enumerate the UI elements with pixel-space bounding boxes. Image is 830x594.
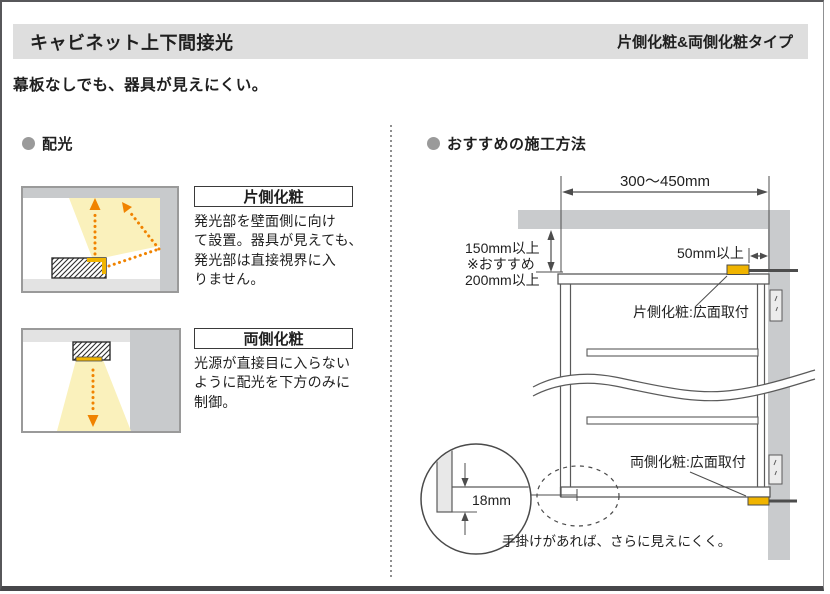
one-side-label-box: 片側化粧	[194, 186, 353, 207]
note-text: 手掛けがあれば、さらに見えにくく。	[502, 534, 731, 549]
arrow-left-icon	[750, 253, 758, 260]
clearance-text: 150mm以上	[465, 240, 540, 256]
installation-section-title: おすすめの施工方法	[447, 133, 587, 154]
cabinet-bottom-panel	[561, 487, 770, 497]
both-sides-description: 光源が直接目に入らない ように配光を下方のみに 制御。	[194, 354, 376, 412]
fixture-bottom	[748, 497, 769, 505]
fixture-top-label: 片側化粧:広面取付	[633, 304, 749, 320]
one-side-label: 片側化粧	[243, 186, 303, 207]
upper-shelf-gray	[23, 330, 130, 342]
fixture-top	[727, 265, 749, 275]
shelf-upper	[587, 349, 758, 356]
arrow-right-icon	[760, 253, 768, 260]
installation-diagram: 300〜450mm 150mm以上 ※おすすめ 200mm以上 50mm以上	[415, 160, 820, 560]
detail-dim-text: 18mm	[472, 492, 511, 508]
catalog-page: キャビネット上下間接光 片側化粧&両側化粧タイプ 幕板なしでも、器具が見えにくい…	[0, 0, 830, 594]
arrow-down-icon	[547, 262, 554, 272]
type-label: 片側化粧&両側化粧タイプ	[617, 31, 793, 52]
page-title: キャビネット上下間接光	[30, 29, 234, 55]
wall-bracket-bottom	[769, 455, 782, 484]
clearance-note-prefix: ※おすすめ	[467, 256, 535, 272]
both-sides-label-box: 両側化粧	[194, 328, 353, 349]
column-divider	[390, 125, 392, 577]
light-emitter-strip	[76, 357, 102, 361]
counter-surface	[23, 279, 160, 291]
wall-gray	[130, 330, 179, 431]
arrow-up-icon	[547, 230, 554, 240]
clearance-note-value: 200mm以上	[465, 272, 540, 288]
dim-width-text: 300〜450mm	[620, 173, 710, 190]
arrow-left-icon	[562, 188, 573, 195]
page-subtitle: 幕板なしでも、器具が見えにくい。	[13, 73, 268, 95]
installation-section-header: おすすめの施工方法	[427, 133, 587, 154]
distribution-section-title: 配光	[42, 133, 73, 154]
side-gap-text: 50mm以上	[677, 245, 744, 261]
one-side-description: 発光部を壁面側に向け て設置。器具が見えても、 発光部は直接視界に入 りません。	[194, 212, 376, 290]
shelf-lower	[587, 417, 758, 424]
one-side-distribution-diagram	[21, 186, 179, 293]
both-sides-label: 両側化粧	[243, 328, 303, 349]
upper-cabinet-gray	[23, 188, 177, 198]
section-bullet-icon	[427, 137, 440, 150]
both-sides-distribution-diagram	[21, 328, 181, 433]
fixture-bottom-label: 両側化粧:広面取付	[630, 454, 746, 470]
wall-gray	[160, 188, 177, 291]
distribution-section-header: 配光	[22, 133, 73, 154]
upper-cabinet-gray	[518, 210, 790, 229]
header-bar: キャビネット上下間接光 片側化粧&両側化粧タイプ	[13, 24, 808, 59]
wall-bracket-top	[770, 290, 782, 321]
cabinet-top-panel	[558, 274, 769, 284]
arrow-right-icon	[757, 188, 768, 195]
section-bullet-icon	[22, 137, 35, 150]
